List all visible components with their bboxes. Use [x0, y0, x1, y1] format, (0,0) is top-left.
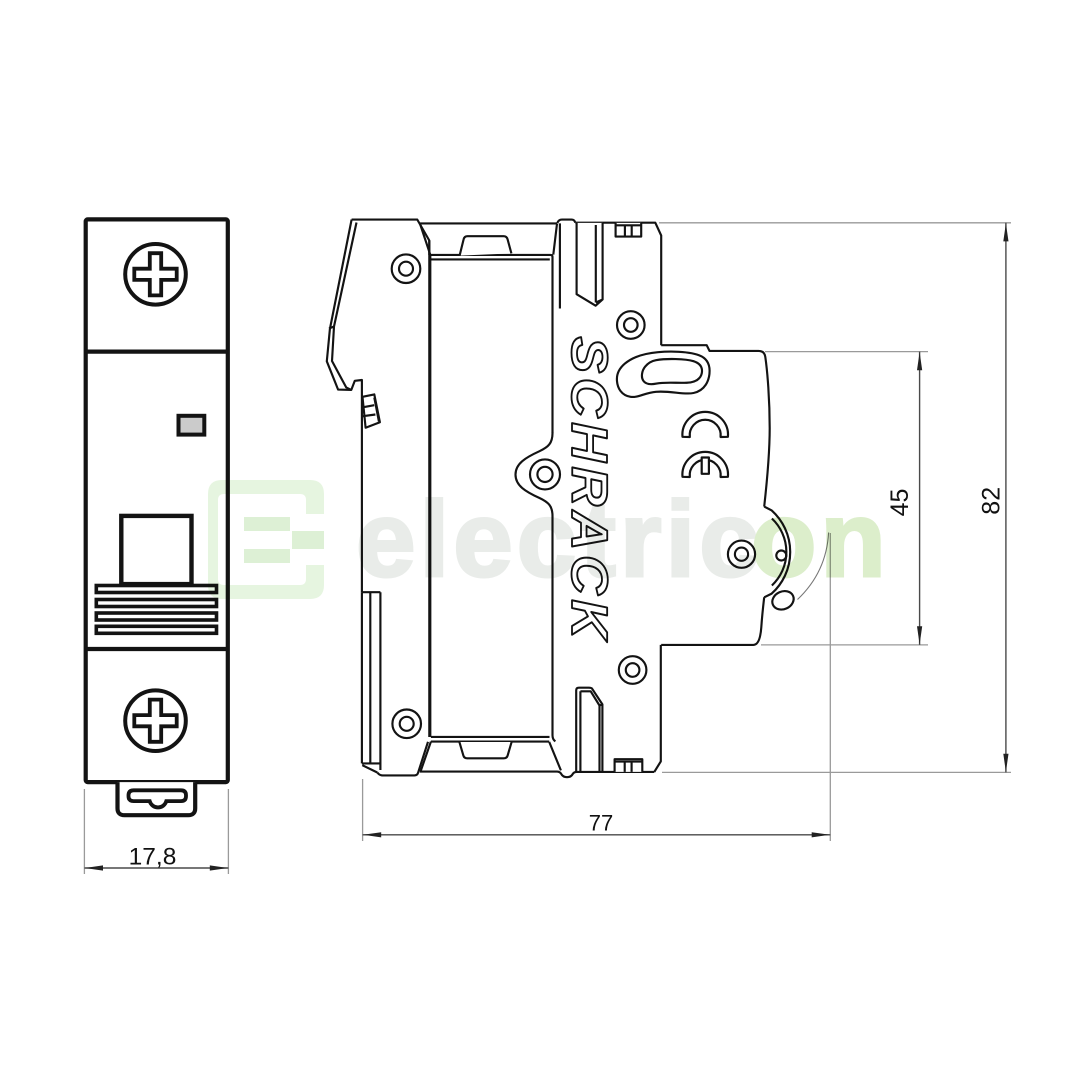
svg-text:77: 77 [589, 811, 613, 836]
svg-text:electric: electric [356, 479, 763, 599]
svg-text:17,8: 17,8 [129, 844, 177, 871]
svg-text:45: 45 [886, 489, 914, 517]
svg-text:on: on [751, 479, 890, 599]
svg-text:82: 82 [978, 487, 1006, 515]
